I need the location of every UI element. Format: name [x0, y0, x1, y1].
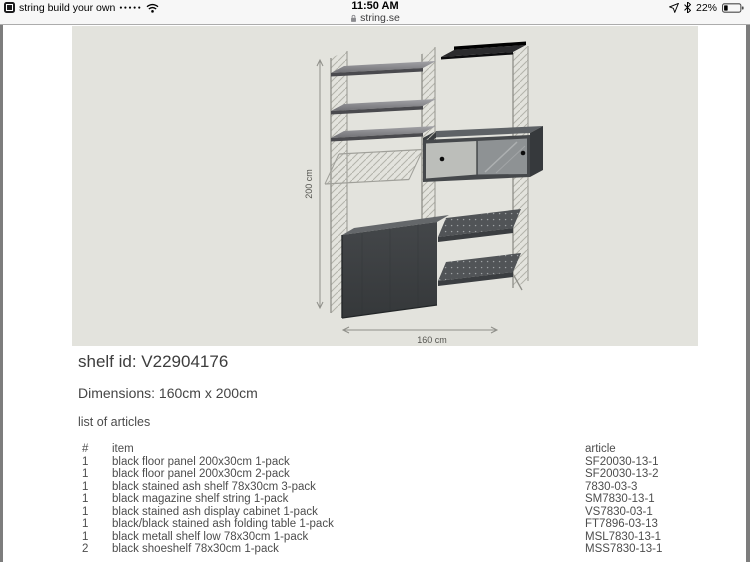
table-row: 1black floor panel 200x30cm 1-packSF2003…: [3, 456, 746, 469]
battery-percent: 22%: [696, 2, 717, 14]
magazine-shelf: [325, 150, 423, 185]
cell-qty: 1: [82, 456, 112, 469]
cell-item: black magazine shelf string 1-pack: [112, 493, 585, 506]
status-center-group: 11:50 AM string.se: [0, 1, 750, 24]
cell-item: black stained ash display cabinet 1-pack: [112, 506, 585, 519]
status-bar: string build your own ●●●●● 11:50 AM str…: [0, 0, 750, 25]
header-qty: #: [82, 443, 112, 456]
cell-article: SF20030-13-2: [585, 468, 746, 481]
cell-article: MSS7830-13-1: [585, 543, 746, 556]
cell-qty: 1: [82, 493, 112, 506]
list-of-articles-title: list of articles: [78, 416, 746, 429]
cell-qty: 1: [82, 468, 112, 481]
bluetooth-icon: [684, 2, 691, 13]
width-dimension: [343, 327, 497, 333]
folding-table: [342, 215, 449, 318]
location-arrow-icon: [669, 3, 679, 13]
table-body: 1black floor panel 200x30cm 1-packSF2003…: [3, 456, 746, 556]
clock: 11:50 AM: [0, 1, 750, 12]
cell-item: black/black stained ash folding table 1-…: [112, 518, 585, 531]
page-content: 200 cm 160 cm: [3, 25, 746, 562]
cell-item: black floor panel 200x30cm 1-pack: [112, 456, 585, 469]
cell-qty: 2: [82, 543, 112, 556]
lock-icon: [350, 14, 357, 23]
cell-article: 7830-03-3: [585, 481, 746, 494]
cell-article: FT7896-03-13: [585, 518, 746, 531]
url-bar[interactable]: string.se: [0, 13, 750, 24]
cell-qty: 1: [82, 531, 112, 544]
status-right-group: 22%: [669, 1, 744, 14]
cell-qty: 1: [82, 481, 112, 494]
table-row: 1black metall shelf low 78x30cm 1-packMS…: [3, 531, 746, 544]
height-dimension-label: 200 cm: [304, 169, 314, 199]
url-text: string.se: [360, 13, 400, 24]
cell-article: SM7830-13-1: [585, 493, 746, 506]
cabinet-handle: [521, 151, 526, 156]
dimensions-text: Dimensions: 160cm x 200cm: [78, 386, 746, 400]
cell-qty: 1: [82, 518, 112, 531]
table-row: 1black stained ash display cabinet 1-pac…: [3, 506, 746, 519]
header-item: item: [112, 443, 585, 456]
cell-qty: 1: [82, 506, 112, 519]
shelf-render-canvas: 200 cm 160 cm: [72, 26, 698, 346]
table-row: 1black/black stained ash folding table 1…: [3, 518, 746, 531]
cabinet-handle: [440, 157, 445, 162]
cell-item: black stained ash shelf 78x30cm 3-pack: [112, 481, 585, 494]
shoe-shelf: [438, 209, 521, 242]
table-row: 1black stained ash shelf 78x30cm 3-pack7…: [3, 481, 746, 494]
shoe-shelf: [438, 253, 521, 286]
width-dimension-label: 160 cm: [417, 335, 447, 345]
cell-item: black floor panel 200x30cm 2-pack: [112, 468, 585, 481]
table-row: 1black floor panel 200x30cm 2-packSF2003…: [3, 468, 746, 481]
shelf-diagram: 200 cm 160 cm: [72, 26, 698, 346]
cell-article: VS7830-03-1: [585, 506, 746, 519]
table-row: 2black shoeshelf 78x30cm 1-packMSS7830-1…: [3, 543, 746, 556]
cell-item: black shoeshelf 78x30cm 1-pack: [112, 543, 585, 556]
battery-icon: [722, 3, 744, 13]
height-dimension: [317, 60, 323, 308]
table-row: 1black magazine shelf string 1-packSM783…: [3, 493, 746, 506]
cell-article: MSL7830-13-1: [585, 531, 746, 544]
cell-article: SF20030-13-1: [585, 456, 746, 469]
header-article: article: [585, 443, 746, 456]
table-header-row: # item article: [3, 443, 746, 456]
articles-table: # item article 1black floor panel 200x30…: [3, 443, 746, 556]
cell-item: black metall shelf low 78x30cm 1-pack: [112, 531, 585, 544]
shelf-id: shelf id: V22904176: [78, 353, 746, 370]
